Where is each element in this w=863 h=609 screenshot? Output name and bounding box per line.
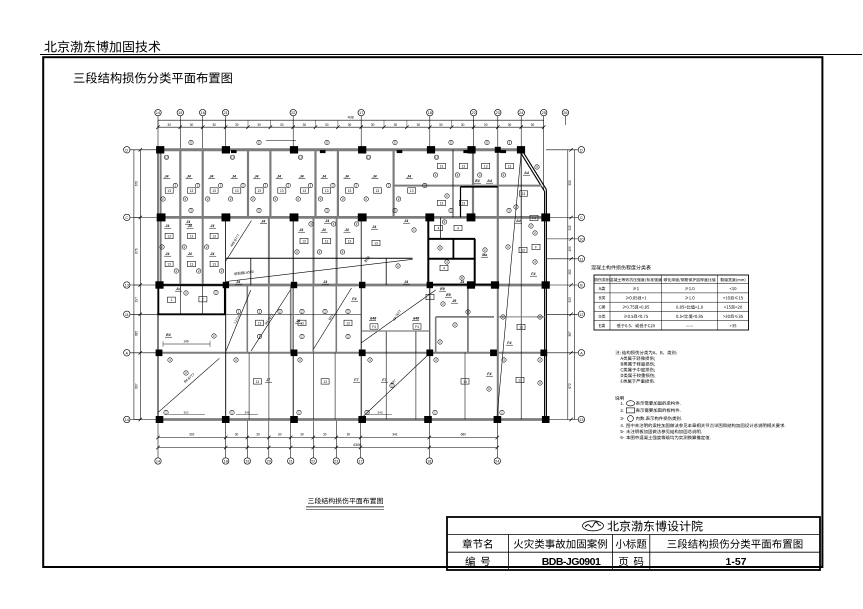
svg-text:4: 4 — [457, 226, 459, 230]
svg-text:J4: J4 — [209, 175, 214, 179]
svg-text:26: 26 — [563, 111, 567, 115]
svg-text:13: 13 — [212, 262, 216, 266]
svg-text:385: 385 — [135, 331, 139, 337]
svg-text:C: C — [580, 216, 583, 220]
svg-text:12: 12 — [299, 155, 303, 159]
svg-text:408: 408 — [348, 116, 354, 120]
svg-text:302: 302 — [189, 433, 195, 437]
svg-text:648: 648 — [370, 317, 377, 321]
svg-text:J4: J4 — [165, 252, 170, 256]
svg-text:13: 13 — [374, 241, 378, 245]
svg-text:13: 13 — [235, 189, 239, 193]
svg-text:J4: J4 — [261, 220, 266, 224]
svg-text:30: 30 — [371, 123, 375, 127]
svg-text:15: 15 — [178, 111, 182, 115]
svg-text:30: 30 — [394, 123, 398, 127]
svg-text:30: 30 — [531, 123, 535, 127]
svg-text:14: 14 — [125, 418, 129, 422]
svg-text:11: 11 — [579, 257, 583, 261]
svg-text:J4: J4 — [321, 228, 326, 232]
svg-text:13: 13 — [346, 321, 350, 325]
svg-text:J4: J4 — [404, 280, 409, 284]
svg-text:13: 13 — [440, 201, 444, 205]
svg-text:313: 313 — [568, 297, 572, 303]
svg-text:A4: A4 — [524, 171, 529, 175]
svg-text:J4: J4 — [296, 319, 301, 323]
svg-text:J4: J4 — [299, 228, 304, 232]
svg-text:F4: F4 — [372, 325, 376, 329]
svg-text:A: A — [126, 351, 129, 355]
svg-text:30: 30 — [347, 433, 351, 437]
svg-text:13: 13 — [212, 189, 216, 193]
svg-text:22: 22 — [471, 111, 475, 115]
svg-text:J4: J4 — [372, 225, 377, 229]
svg-text:B: B — [580, 284, 583, 288]
svg-text:13: 13 — [410, 189, 414, 193]
svg-text:A4: A4 — [176, 287, 181, 291]
svg-text:1: 1 — [171, 298, 173, 302]
svg-text:17: 17 — [358, 460, 362, 464]
svg-text:13: 13 — [518, 378, 522, 382]
svg-text:30: 30 — [280, 123, 284, 127]
svg-text:F4: F4 — [487, 372, 492, 376]
svg-text:E9: E9 — [446, 293, 451, 297]
svg-text:13: 13 — [522, 192, 526, 196]
svg-text:30: 30 — [257, 123, 261, 127]
svg-text:J4: J4 — [165, 224, 170, 228]
svg-text:14: 14 — [156, 460, 160, 464]
svg-text:13: 13 — [348, 239, 352, 243]
svg-text:1: 1 — [429, 295, 431, 299]
svg-text:J4: J4 — [372, 175, 377, 179]
svg-text:J4: J4 — [406, 175, 411, 179]
svg-text:12: 12 — [435, 155, 439, 159]
svg-text:13: 13 — [325, 189, 329, 193]
svg-text:13: 13 — [280, 189, 284, 193]
svg-text:J4: J4 — [236, 280, 241, 284]
svg-text:13: 13 — [484, 164, 488, 168]
svg-text:13: 13 — [302, 239, 306, 243]
svg-text:J4: J4 — [187, 252, 192, 256]
svg-text:670: 670 — [135, 181, 139, 187]
svg-text:22: 22 — [291, 111, 295, 115]
svg-text:A4: A4 — [487, 179, 492, 183]
svg-text:30: 30 — [439, 123, 443, 127]
svg-text:13: 13 — [167, 189, 171, 193]
svg-text:302: 302 — [183, 410, 188, 414]
svg-text:30: 30 — [167, 123, 171, 127]
svg-text:J4: J4 — [325, 219, 330, 223]
svg-text:13: 13 — [125, 284, 129, 288]
svg-text:30: 30 — [190, 123, 194, 127]
svg-text:A: A — [580, 351, 583, 355]
svg-text:667: 667 — [135, 383, 139, 389]
svg-text:25: 25 — [542, 111, 546, 115]
svg-text:J9: J9 — [452, 299, 457, 303]
svg-text:E4: E4 — [475, 179, 480, 183]
svg-text:13: 13 — [521, 248, 525, 252]
svg-text:30: 30 — [417, 123, 421, 127]
svg-text:680: 680 — [461, 433, 467, 437]
svg-text:13: 13 — [519, 325, 523, 329]
svg-text:13: 13 — [440, 164, 444, 168]
svg-text:18: 18 — [427, 460, 431, 464]
svg-text:30: 30 — [278, 433, 282, 437]
svg-text:13: 13 — [212, 234, 216, 238]
svg-text:13: 13 — [462, 164, 466, 168]
svg-text:13: 13 — [257, 189, 261, 193]
svg-text:13: 13 — [462, 201, 466, 205]
svg-text:12: 12 — [231, 155, 235, 159]
svg-text:11: 11 — [125, 313, 129, 317]
svg-text:J4: J4 — [210, 252, 215, 256]
svg-text:30: 30 — [508, 123, 512, 127]
svg-text:13: 13 — [190, 262, 194, 266]
svg-text:13: 13 — [323, 380, 327, 384]
svg-text:J4: J4 — [277, 175, 282, 179]
svg-text:30: 30 — [300, 433, 304, 437]
svg-text:13: 13 — [190, 189, 194, 193]
svg-text:341: 341 — [392, 433, 398, 437]
svg-text:297: 297 — [135, 297, 139, 303]
svg-text:13: 13 — [167, 234, 171, 238]
svg-text:10: 10 — [579, 237, 583, 241]
svg-text:30: 30 — [212, 123, 216, 127]
svg-text:672: 672 — [568, 383, 572, 389]
svg-text:262: 262 — [568, 269, 572, 275]
svg-text:24: 24 — [495, 460, 499, 464]
svg-text:12: 12 — [165, 155, 169, 159]
svg-text:14: 14 — [156, 111, 160, 115]
svg-text:13: 13 — [579, 418, 583, 422]
svg-text:J4: J4 — [210, 224, 215, 228]
svg-text:C: C — [125, 216, 128, 220]
svg-text:J4: J4 — [460, 280, 465, 284]
svg-text:13: 13 — [376, 189, 380, 193]
svg-text:12: 12 — [579, 313, 583, 317]
svg-text:1.: 1. — [620, 401, 624, 406]
svg-text:23: 23 — [334, 460, 338, 464]
svg-text:4308: 4308 — [353, 443, 361, 447]
svg-text:F4: F4 — [507, 341, 512, 345]
svg-text:J7: J7 — [266, 378, 271, 382]
svg-text:J4: J4 — [404, 219, 409, 223]
svg-text:E9: E9 — [440, 287, 445, 291]
svg-text:J4: J4 — [187, 224, 192, 228]
svg-text:J4: J4 — [321, 175, 326, 179]
svg-text:F: F — [535, 245, 537, 249]
svg-text:F4: F4 — [352, 297, 357, 301]
svg-text:13: 13 — [190, 234, 194, 238]
svg-text:22: 22 — [311, 460, 315, 464]
svg-text:21: 21 — [223, 111, 227, 115]
svg-text:4: 4 — [438, 226, 440, 230]
svg-text:13: 13 — [348, 189, 352, 193]
svg-text:13: 13 — [303, 189, 307, 193]
svg-text:215: 215 — [568, 225, 572, 231]
svg-text:18: 18 — [428, 111, 432, 115]
svg-text:D: D — [125, 148, 128, 152]
svg-text:140: 140 — [183, 340, 189, 344]
svg-text:648: 648 — [413, 317, 420, 321]
svg-text:21: 21 — [289, 460, 293, 464]
svg-text:F4: F4 — [415, 325, 419, 329]
svg-text:J4: J4 — [344, 228, 349, 232]
svg-text:F4: F4 — [531, 272, 536, 276]
svg-text:30: 30 — [325, 123, 329, 127]
svg-text:J4: J4 — [164, 175, 169, 179]
svg-text:367: 367 — [568, 331, 572, 337]
svg-text:F4: F4 — [532, 216, 536, 220]
svg-text:30: 30 — [348, 123, 352, 127]
svg-text:D: D — [580, 148, 583, 152]
svg-text:2.: 2. — [620, 408, 624, 413]
svg-text:199: 199 — [568, 246, 572, 252]
svg-text:13: 13 — [256, 380, 260, 384]
svg-text:20: 20 — [267, 460, 271, 464]
svg-text:30: 30 — [303, 123, 307, 127]
svg-text:1-57: 1-57 — [725, 556, 746, 568]
svg-text:340: 340 — [244, 410, 249, 414]
svg-text:J4: J4 — [254, 175, 259, 179]
svg-text:3-: 3- — [620, 416, 624, 421]
svg-text:F7: F7 — [382, 378, 387, 382]
svg-text:18: 18 — [224, 460, 228, 464]
svg-text:4.: 4. — [620, 423, 624, 428]
svg-text:J4: J4 — [299, 175, 304, 179]
svg-text:BDB-JG0901: BDB-JG0901 — [542, 556, 601, 568]
svg-text:6-: 6- — [620, 435, 624, 440]
svg-text:30: 30 — [461, 123, 465, 127]
svg-text:340: 340 — [377, 410, 382, 414]
svg-text:13: 13 — [463, 380, 467, 384]
svg-text:300: 300 — [568, 180, 572, 186]
svg-text:23: 23 — [496, 111, 500, 115]
svg-text:30: 30 — [256, 433, 260, 437]
svg-text:5-: 5- — [620, 429, 624, 434]
svg-text:E4: E4 — [166, 333, 171, 337]
svg-text:F7: F7 — [354, 378, 359, 382]
svg-text:A4: A4 — [516, 219, 521, 223]
svg-text:J4: J4 — [344, 175, 349, 179]
svg-text:13: 13 — [508, 164, 512, 168]
svg-text:30: 30 — [235, 433, 239, 437]
svg-text:13: 13 — [167, 262, 171, 266]
svg-text:30: 30 — [323, 433, 327, 437]
svg-text:19: 19 — [245, 460, 249, 464]
svg-text:30: 30 — [484, 123, 488, 127]
svg-text:J4: J4 — [323, 280, 328, 284]
svg-text:4: 4 — [443, 266, 445, 270]
svg-text:13: 13 — [258, 321, 262, 325]
svg-text:J4: J4 — [186, 175, 191, 179]
svg-text:24: 24 — [519, 111, 523, 115]
svg-text:13: 13 — [325, 239, 329, 243]
svg-text:16: 16 — [201, 111, 205, 115]
svg-text:12: 12 — [367, 155, 371, 159]
svg-text:676: 676 — [135, 248, 139, 254]
svg-text:17: 17 — [359, 111, 363, 115]
svg-text:30: 30 — [235, 123, 239, 127]
svg-text:2: 2 — [202, 298, 204, 302]
svg-text:J4: J4 — [232, 175, 237, 179]
